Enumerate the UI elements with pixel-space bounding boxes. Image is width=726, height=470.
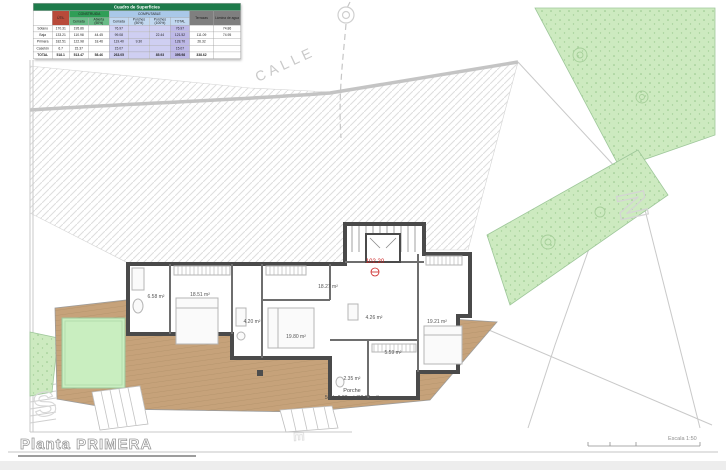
room-label-hall: 18.27 m²: [318, 284, 338, 290]
col-construida-cerrada: Cerrada: [69, 18, 88, 26]
cell-terrazas: 338.62: [189, 52, 213, 59]
cell-total: 395.98: [170, 52, 189, 59]
table-row: Primera182.51122.9818.46119.409.30128.70…: [33, 39, 240, 46]
cell-abierta: [88, 25, 109, 32]
page-bottom-strip: [0, 461, 726, 470]
porch-label-line2: 50%=9.30 m² (18.60 m²): [325, 395, 380, 401]
room-label-bathroom-3: 4.26 m²: [366, 315, 383, 321]
col-lamina: Lámina de agua: [214, 11, 241, 25]
col-terrazas: Terrazas: [189, 11, 213, 25]
cell-cerrada: 513.47: [69, 52, 88, 59]
surface-table-body: Sótano170.31195.8676.9776.9774.86Baja133…: [33, 25, 240, 58]
col-computable-total: TOTAL: [170, 18, 189, 26]
cell-util: 182.51: [52, 39, 69, 46]
cell-total: 121.52: [170, 32, 189, 39]
decor-letter-e: E: [291, 432, 307, 442]
street-label: CALLE: [253, 43, 318, 85]
col-computable-porches100: Porches (100%): [149, 18, 170, 26]
cell-total: 76.97: [170, 25, 189, 32]
room-label-dressing: 5.59 m²: [385, 350, 402, 356]
cell-porches100: 22.44: [149, 32, 170, 39]
level-marker-value: 102.20: [366, 259, 385, 265]
cell-util: 170.31: [52, 25, 69, 32]
cell-porches100: [149, 39, 170, 46]
cell-terrazas: 111.09: [189, 32, 213, 39]
cell-abierta: 44.45: [88, 32, 109, 39]
room-label-wc: 2.35 m²: [344, 376, 361, 382]
cell-util: 133.21: [52, 32, 69, 39]
cell-lamina: [214, 45, 241, 52]
cell-porches100: [149, 25, 170, 32]
col-util: ÚTIL: [52, 11, 69, 25]
cell-comp_cerrada: 263.05: [109, 52, 128, 59]
cell-total: 15.07: [170, 45, 189, 52]
table-group-row: ÚTIL CONSTRUIDA COMPUTABLE Terrazas Lámi…: [33, 11, 240, 18]
cell-lamina: [214, 39, 241, 46]
table-row: TOTAL518.1513.4758.46263.0585.93395.9833…: [33, 52, 240, 59]
cell-terrazas: [189, 25, 213, 32]
cell-util: 518.1: [52, 52, 69, 59]
cell-abierta: 58.46: [88, 52, 109, 59]
surface-table: Cuadro de Superficies ÚTIL CONSTRUIDA CO…: [33, 3, 241, 59]
cell-label: Sótano: [33, 25, 52, 32]
room-label-bathroom-1: 6.58 m²: [148, 294, 165, 300]
cell-porches50: [128, 45, 149, 52]
cell-terrazas: [189, 45, 213, 52]
cell-total: 128.70: [170, 39, 189, 46]
cell-comp_cerrada: 15.07: [109, 45, 128, 52]
cell-lamina: 74.86: [214, 25, 241, 32]
cell-porches50: [128, 25, 149, 32]
corner-cell: [33, 11, 52, 25]
cell-label: TOTAL: [33, 52, 52, 59]
col-group-construida: CONSTRUIDA: [69, 11, 109, 18]
col-computable-cerrada: Cerrada: [109, 18, 128, 26]
cell-lamina: 74.95: [214, 32, 241, 39]
cell-terrazas: 26.32: [189, 39, 213, 46]
col-group-computable: COMPUTABLE: [109, 11, 189, 18]
decor-letter-s: S: [30, 384, 60, 426]
cell-util: 6.7: [52, 45, 69, 52]
col-construida-abierta: Abierta (50%): [88, 18, 109, 26]
cell-cerrada: 122.98: [69, 39, 88, 46]
drawing-sheet: CALLE: [0, 0, 726, 470]
table-row: Casetón6.715.3715.0715.07: [33, 45, 240, 52]
green-area-northeast: [535, 8, 715, 168]
deck-steps-bottom: [280, 406, 338, 432]
cell-porches100: [149, 45, 170, 52]
street-hatch-area: [30, 62, 518, 264]
surface-table-grid: Cuadro de Superficies ÚTIL CONSTRUIDA CO…: [33, 3, 241, 59]
plan-title: Planta PRIMERA: [20, 436, 152, 453]
cell-porches100: 85.93: [149, 52, 170, 59]
col-computable-porches50: Porches (50%): [128, 18, 149, 26]
manhole-icon: [338, 7, 354, 23]
pool: [62, 318, 125, 388]
room-label-bedroom-2: 19.80 m²: [286, 334, 306, 340]
cell-label: Baja: [33, 32, 52, 39]
table-title: Cuadro de Superficies: [33, 3, 240, 11]
cell-lamina: [214, 52, 241, 59]
cell-comp_cerrada: 76.97: [109, 25, 128, 32]
elevator: [366, 234, 400, 262]
table-title-row: Cuadro de Superficies: [33, 3, 240, 11]
table-row: Baja133.21110.9844.4599.0822.44121.52111…: [33, 32, 240, 39]
cell-label: Primera: [33, 39, 52, 46]
cell-porches50: 9.30: [128, 39, 149, 46]
room-label-bathroom-2: 4.20 m²: [244, 319, 261, 325]
cell-abierta: 18.46: [88, 39, 109, 46]
room-label-bedroom-3: 19.21 m²: [427, 319, 447, 325]
deck-steps-left: [92, 386, 148, 430]
cell-cerrada: 195.86: [69, 25, 88, 32]
cell-porches50: [128, 32, 149, 39]
cell-comp_cerrada: 119.40: [109, 39, 128, 46]
site-plan-svg: CALLE: [0, 0, 726, 470]
scale-bar: [588, 442, 700, 446]
cell-comp_cerrada: 99.08: [109, 32, 128, 39]
porch-label-line1: Porche: [343, 388, 360, 394]
cell-cerrada: 110.98: [69, 32, 88, 39]
room-label-bedroom-1: 18.51 m²: [190, 292, 210, 298]
table-row: Sótano170.31195.8676.9776.9774.86: [33, 25, 240, 32]
scale-label: Escala 1:50: [668, 436, 697, 442]
cell-porches50: [128, 52, 149, 59]
cell-cerrada: 15.37: [69, 45, 88, 52]
cell-abierta: [88, 45, 109, 52]
cell-label: Casetón: [33, 45, 52, 52]
